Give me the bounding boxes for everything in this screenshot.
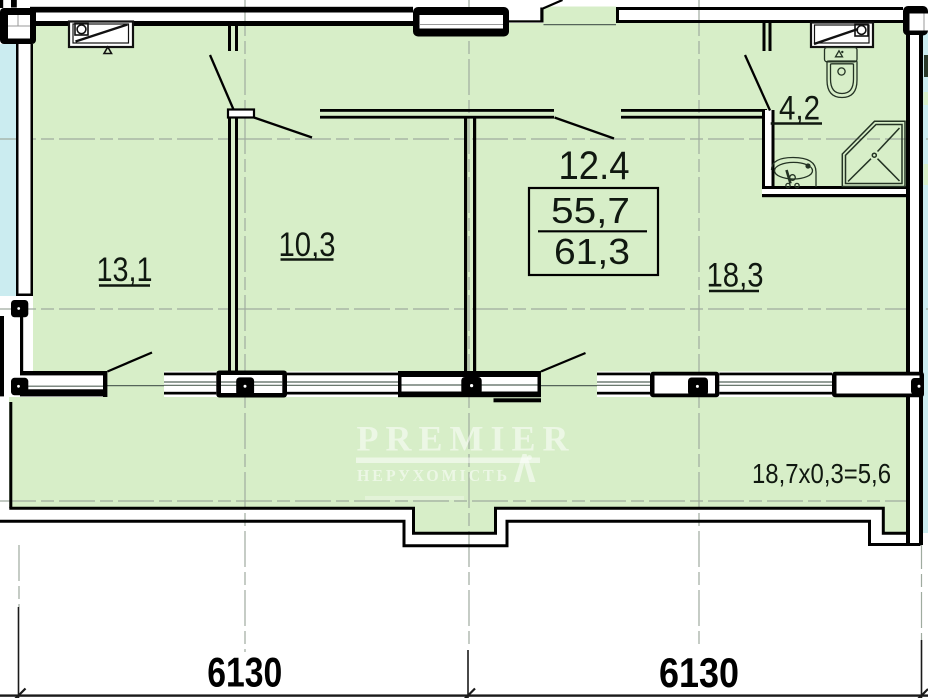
svg-text:12.4: 12.4: [559, 144, 630, 188]
svg-text:18,3: 18,3: [707, 257, 764, 295]
svg-text:НЕРУХОМІСТЬ: НЕРУХОМІСТЬ: [357, 466, 510, 485]
svg-text:PREMIER: PREMIER: [357, 419, 576, 459]
svg-text:6130: 6130: [207, 649, 282, 696]
svg-text:4,2: 4,2: [779, 90, 820, 128]
svg-text:13,1: 13,1: [97, 251, 153, 289]
svg-text:61,3: 61,3: [554, 231, 630, 272]
svg-text:55,7: 55,7: [551, 190, 630, 231]
svg-text:18,7x0,3=5,6: 18,7x0,3=5,6: [752, 458, 891, 489]
svg-text:6130: 6130: [659, 649, 739, 696]
